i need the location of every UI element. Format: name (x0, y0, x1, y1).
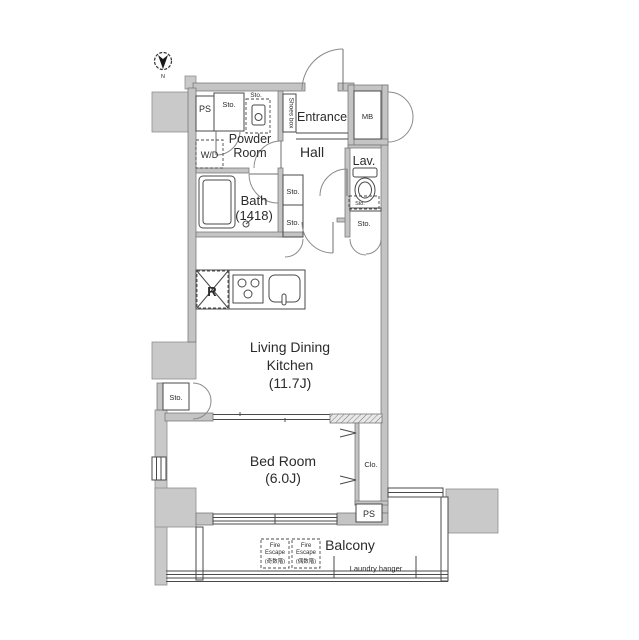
wall-mb-bottom (350, 139, 388, 145)
sto-lav-lower-label: Sto. (357, 219, 370, 228)
wall-east (381, 145, 388, 513)
ldk-label-1: Living Dining (250, 339, 330, 355)
sto-lav-door-right (366, 239, 381, 254)
fire-escape-odd-label-3: (奇数階) (265, 557, 285, 565)
wall-lav-north (348, 145, 381, 148)
floor-plan: N PS Sto. Sto. Shoes box Entrance MB Pow… (0, 0, 639, 640)
sto-ldk-label: Sto. (169, 393, 182, 402)
closet-fold-mark-upper (340, 429, 356, 437)
floor-plan-canvas: N PS Sto. Sto. Shoes box Entrance MB Pow… (0, 0, 639, 640)
sto-ldk-door-upper (193, 383, 211, 401)
wall-mb-left (348, 85, 354, 145)
bath-label-2: (1418) (235, 208, 273, 223)
sto-water-heater-label: Sto. (250, 92, 262, 99)
ps-top-label: PS (199, 104, 211, 114)
balcony-west-wall (196, 527, 203, 580)
washer-dryer-label: W/D (201, 150, 219, 160)
sto-hall-lower-door (285, 239, 303, 257)
entrance-door-swing (302, 49, 343, 90)
laundry-hanger-label: Laundry hanger (350, 564, 403, 573)
mb-door-lower (388, 117, 413, 142)
sto-hall-upper-label: Sto. (286, 187, 299, 196)
refrigerator-label: R (207, 284, 217, 299)
mb-door-upper (388, 92, 413, 117)
bedroom-label-1: Bed Room (250, 453, 316, 469)
stove-burner-1 (238, 279, 246, 287)
lav-door-swing (320, 169, 347, 196)
wall-hatched-strip (330, 414, 382, 423)
fire-escape-odd-label-2: Escape (265, 550, 286, 556)
bathtub (199, 176, 235, 228)
balcony-east-wall (441, 497, 448, 581)
sto-lav-shelf-label: Sto. (355, 201, 365, 207)
bedroom-west-window (152, 457, 166, 480)
water-heater-unit (252, 105, 265, 125)
powder-room-label-1: Powder (229, 132, 271, 146)
fire-escape-even-label-3: (偶数階) (296, 557, 316, 565)
ldk-label-3: (11.7J) (269, 375, 312, 391)
wall-mb-right (382, 85, 388, 145)
bath-label-1: Bath (241, 193, 268, 208)
entrance-label: Entrance (297, 110, 347, 124)
compass-north-label: N (161, 74, 165, 80)
sto-hall-lower-label: Sto. (286, 218, 299, 227)
balcony-structure (166, 497, 448, 582)
bedroom-label-2: (6.0J) (265, 470, 301, 486)
mb-label: MB (362, 112, 373, 121)
fire-escape-odd-label-1: Fire (270, 543, 281, 549)
block-bottom-right (446, 489, 498, 533)
sto-hall-boxes (283, 175, 303, 237)
toilet-tank (353, 168, 377, 177)
stove-burner-2 (251, 279, 259, 287)
closet-label: Clo. (364, 460, 377, 469)
balcony-label: Balcony (325, 537, 375, 553)
fire-escape-even-label-1: Fire (301, 543, 312, 549)
north-compass: N (155, 53, 172, 81)
sink-faucet (282, 294, 286, 305)
ldk-label-2: Kitchen (267, 357, 314, 373)
wall-bedroom-south-left (196, 513, 213, 525)
block-mid-left (152, 342, 196, 379)
ps-bottom-label: PS (363, 509, 375, 519)
block-bottom-left (155, 488, 196, 527)
wall-powder-bath (196, 168, 249, 173)
lav-sto-divider (350, 208, 381, 211)
lav-label: Lav. (353, 154, 376, 168)
wall-closet-west (355, 423, 359, 505)
wall-top (193, 83, 305, 91)
sto-top-box (214, 93, 244, 131)
sto-lav-door-left (350, 239, 366, 255)
closet-fold-mark-lower (340, 476, 356, 484)
sto-top-label: Sto. (222, 100, 235, 109)
ldk-door-swing (302, 222, 333, 253)
stove (233, 275, 263, 303)
stove-burner-3 (244, 290, 252, 298)
powder-room-label-2: Room (233, 146, 266, 160)
wall-powder-hall-lower (278, 168, 283, 237)
fire-escape-even-label-2: Escape (296, 550, 317, 556)
wall-sto-west (157, 383, 163, 410)
wall-bath-ldk (196, 232, 303, 237)
hall-label: Hall (300, 144, 324, 160)
wall-west (188, 88, 196, 342)
shoes-box-label: Shoes box (288, 98, 295, 129)
wall-powder-hall-upper (278, 91, 283, 141)
